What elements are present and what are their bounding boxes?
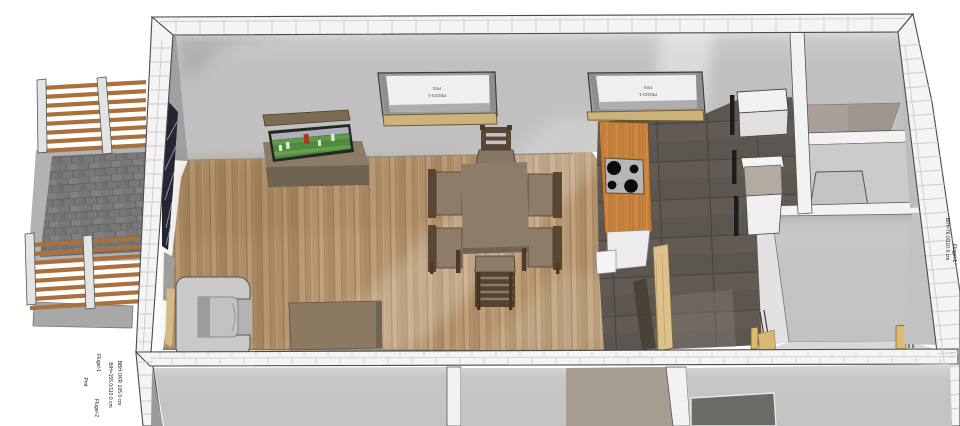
svg-text:B/H=155.0/110.0 cm: B/H=155.0/110.0 cm: [107, 362, 113, 407]
svg-text:B/H=76.0/110.0 cm: B/H=76.0/110.0 cm: [944, 218, 950, 261]
svg-text:BBH OKR 105.0 cm: BBH OKR 105.0 cm: [116, 361, 122, 405]
svg-text:Pmt: Pmt: [432, 86, 441, 91]
svg-text:Flügel-2: Flügel-2: [93, 399, 99, 417]
svg-text:PEGGI-1: PEGGI-1: [428, 93, 446, 98]
svg-text:Pmt: Pmt: [643, 85, 652, 90]
svg-text:Flügel-1: Flügel-1: [95, 354, 101, 372]
svg-text:Pmt: Pmt: [82, 378, 88, 388]
svg-text:PEGGI-1: PEGGI-1: [639, 92, 657, 97]
svg-text:Flügel-1: Flügel-1: [951, 244, 957, 262]
